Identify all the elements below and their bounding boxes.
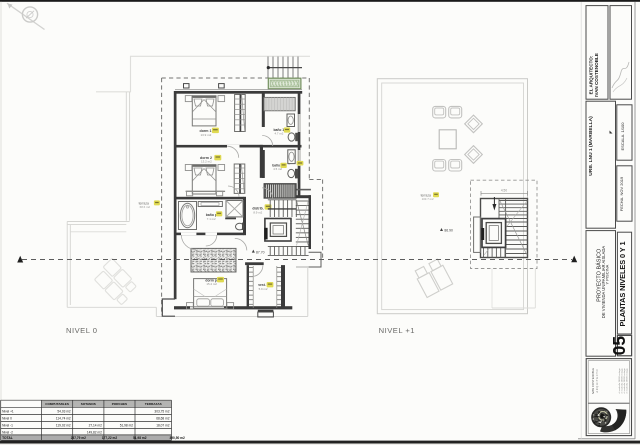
svg-text:4.7 m2: 4.7 m2 (275, 131, 284, 135)
svg-text:177,22 m2: 177,22 m2 (102, 436, 117, 440)
svg-text:SOTANOS: SOTANOS (81, 402, 96, 406)
svg-text:287,79 m2: 287,79 m2 (71, 436, 86, 440)
svg-text:ESCALA. 1/100: ESCALA. 1/100 (620, 122, 625, 151)
svg-text:PLANTAS NIVELES 0 Y 1: PLANTAS NIVELES 0 Y 1 (618, 242, 627, 327)
svg-text:IVAN COSTENOBLE: IVAN COSTENOBLE (591, 368, 595, 394)
svg-text:54,03 m2: 54,03 m2 (57, 409, 71, 413)
svg-text:c/ marbella 29600 malaga: c/ marbella 29600 malaga (625, 368, 628, 394)
svg-text:A R Q U I T E C T O: A R Q U I T E C T O (595, 369, 599, 392)
svg-text:18,07 m2: 18,07 m2 (156, 424, 170, 428)
svg-text:URB. LNU 1 (MARBELLA): URB. LNU 1 (MARBELLA) (588, 116, 594, 176)
svg-text:Nivel 0: Nivel 0 (2, 416, 12, 420)
svg-text:13.9 m2: 13.9 m2 (201, 133, 212, 137)
svg-text:05: 05 (609, 336, 629, 356)
svg-text:FECHA. NOV 2019: FECHA. NOV 2019 (619, 176, 624, 211)
svg-text:149,82 m2: 149,82 m2 (87, 431, 102, 435)
svg-text:NIVEL +1: NIVEL +1 (379, 326, 415, 335)
svg-text:303,75 m2: 303,75 m2 (154, 409, 169, 413)
svg-text:15.4 m2: 15.4 m2 (206, 282, 217, 286)
svg-text:13.2 m2: 13.2 m2 (201, 160, 212, 164)
svg-text:PORCHES: PORCHES (112, 402, 127, 406)
svg-text:4.50: 4.50 (501, 189, 507, 193)
svg-text:h.: h. (288, 162, 291, 166)
svg-text:27,14 m2: 27,14 m2 (89, 424, 103, 428)
svg-text:Nivel -1: Nivel -1 (2, 424, 13, 428)
svg-text:68.6 m2: 68.6 m2 (140, 205, 151, 209)
svg-text:IVAN COSTENOBLE: IVAN COSTENOBLE (594, 53, 599, 97)
svg-text:119,02 m2: 119,02 m2 (56, 424, 71, 428)
svg-text:390,50 m2: 390,50 m2 (170, 436, 185, 440)
svg-text:COMPUTABLES: COMPUTABLES (45, 402, 69, 406)
svg-text:103.7 m2: 103.7 m2 (422, 197, 434, 201)
svg-text:NIVEL 0: NIVEL 0 (66, 326, 98, 335)
svg-text:87.70: 87.70 (256, 250, 265, 254)
svg-text:114,74 m2: 114,74 m2 (56, 416, 71, 420)
svg-text:Y PISCINA: Y PISCINA (605, 264, 610, 284)
svg-text:EL ARQUITECTO:: EL ARQUITECTO: (589, 55, 594, 94)
svg-text:TERRAZAS: TERRAZAS (145, 402, 162, 406)
svg-text:86.90: 86.90 (444, 229, 453, 233)
svg-text:7.1 m2: 7.1 m2 (207, 217, 216, 221)
svg-text:5.9 m2: 5.9 m2 (259, 287, 268, 291)
svg-text:Nivel -2: Nivel -2 (2, 431, 13, 435)
svg-text:51,98 m2: 51,98 m2 (120, 424, 134, 428)
svg-text:TOTAL: TOTAL (2, 436, 13, 440)
svg-text:51,98 m2: 51,98 m2 (133, 436, 147, 440)
svg-text:8.9 m2: 8.9 m2 (253, 210, 262, 214)
svg-text:Nivel +1: Nivel +1 (2, 409, 14, 413)
svg-text:68,68 m2: 68,68 m2 (156, 416, 170, 420)
